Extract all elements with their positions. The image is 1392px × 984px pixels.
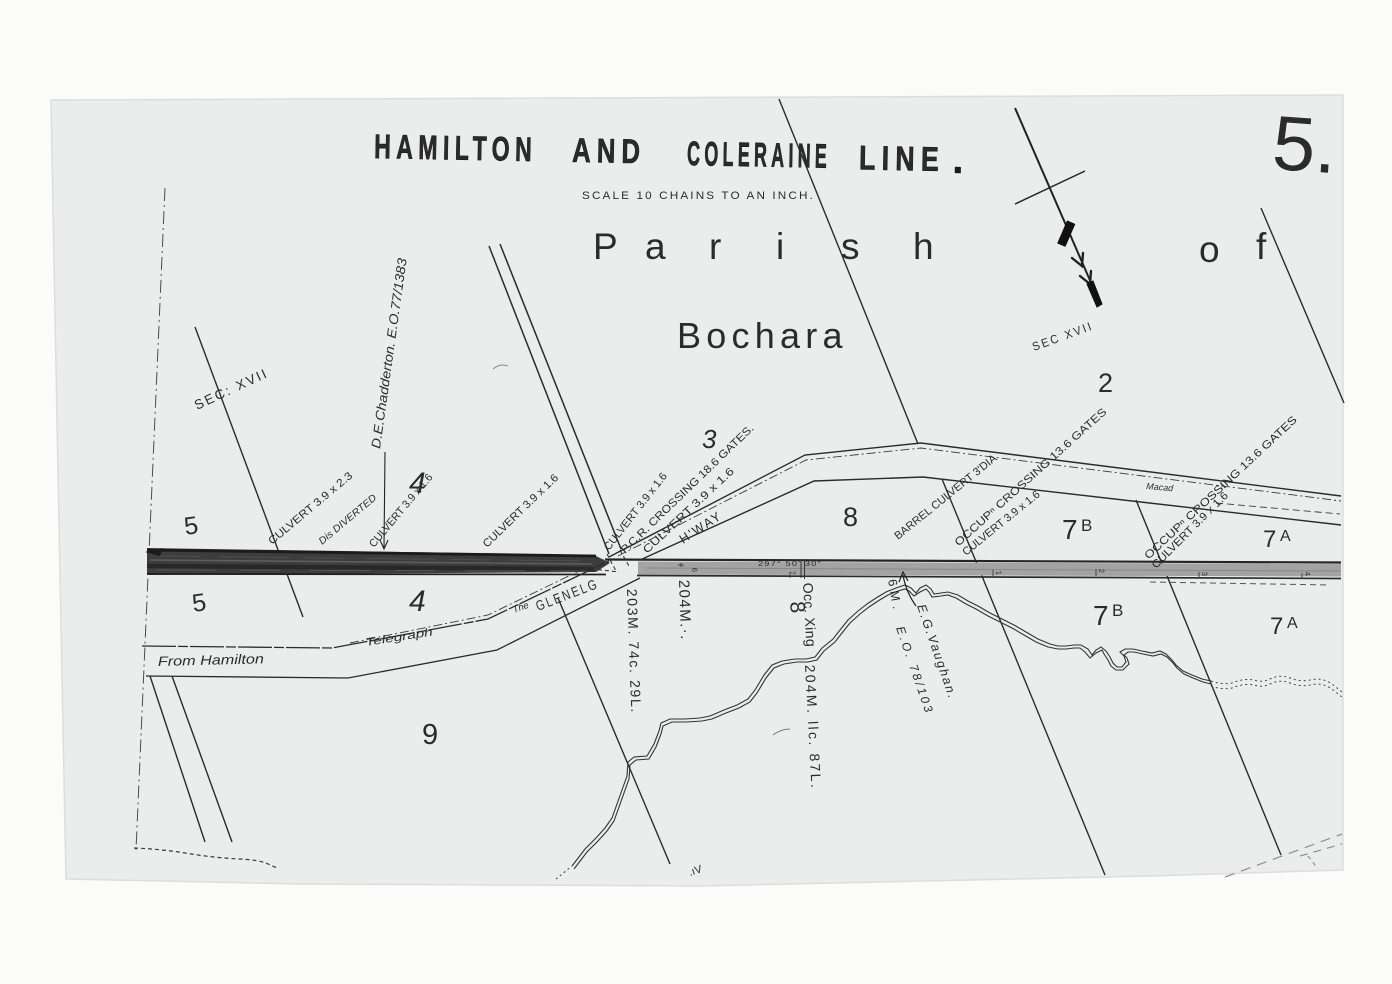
- svg-text:From Hamilton: From Hamilton: [158, 651, 264, 669]
- svg-text:COLERAINE: COLERAINE: [687, 135, 832, 176]
- svg-text:A: A: [1280, 528, 1291, 545]
- svg-text:9: 9: [422, 719, 438, 751]
- svg-text:Occ. Xing: Occ. Xing: [800, 582, 819, 647]
- svg-text:7: 7: [788, 570, 797, 575]
- svg-text:1: 1: [994, 570, 1003, 575]
- svg-text:B: B: [1112, 601, 1123, 620]
- svg-text:3: 3: [1200, 571, 1209, 576]
- svg-text:7: 7: [1062, 514, 1078, 545]
- svg-text:A: A: [1287, 615, 1298, 632]
- svg-text:a: a: [645, 226, 666, 267]
- svg-text:SCALE 10 CHAINS TO AN INCH.: SCALE 10 CHAINS TO AN INCH.: [582, 190, 815, 202]
- svg-text:P: P: [593, 226, 618, 267]
- svg-text:4: 4: [409, 585, 426, 618]
- svg-text:r: r: [709, 226, 721, 267]
- svg-text:HAMILTON: HAMILTON: [374, 128, 538, 169]
- svg-text:7: 7: [1263, 526, 1276, 553]
- svg-text:2: 2: [1097, 568, 1106, 573]
- svg-text:h: h: [913, 226, 934, 267]
- svg-text:B: B: [1081, 516, 1092, 535]
- svg-text:f: f: [1256, 226, 1267, 267]
- svg-text:o: o: [1199, 229, 1220, 270]
- svg-text:4: 4: [409, 467, 426, 500]
- svg-text:4: 4: [1303, 571, 1312, 576]
- svg-text:5.: 5.: [1270, 100, 1340, 190]
- svg-text:2: 2: [1098, 368, 1113, 398]
- svg-text:AND: AND: [572, 132, 647, 171]
- svg-text:7: 7: [1093, 600, 1109, 631]
- svg-text:.: .: [953, 142, 971, 180]
- svg-text:7: 7: [1270, 613, 1283, 640]
- svg-text:3: 3: [702, 424, 717, 454]
- svg-text:LINE: LINE: [859, 139, 946, 179]
- svg-text:8: 8: [843, 502, 858, 532]
- svg-text:Bochara: Bochara: [677, 315, 849, 356]
- svg-text:6: 6: [690, 567, 699, 572]
- svg-text:204M.·.: 204M.·.: [675, 580, 694, 641]
- svg-text:i: i: [776, 226, 784, 267]
- svg-text:297° 50' 30": 297° 50' 30": [758, 559, 822, 568]
